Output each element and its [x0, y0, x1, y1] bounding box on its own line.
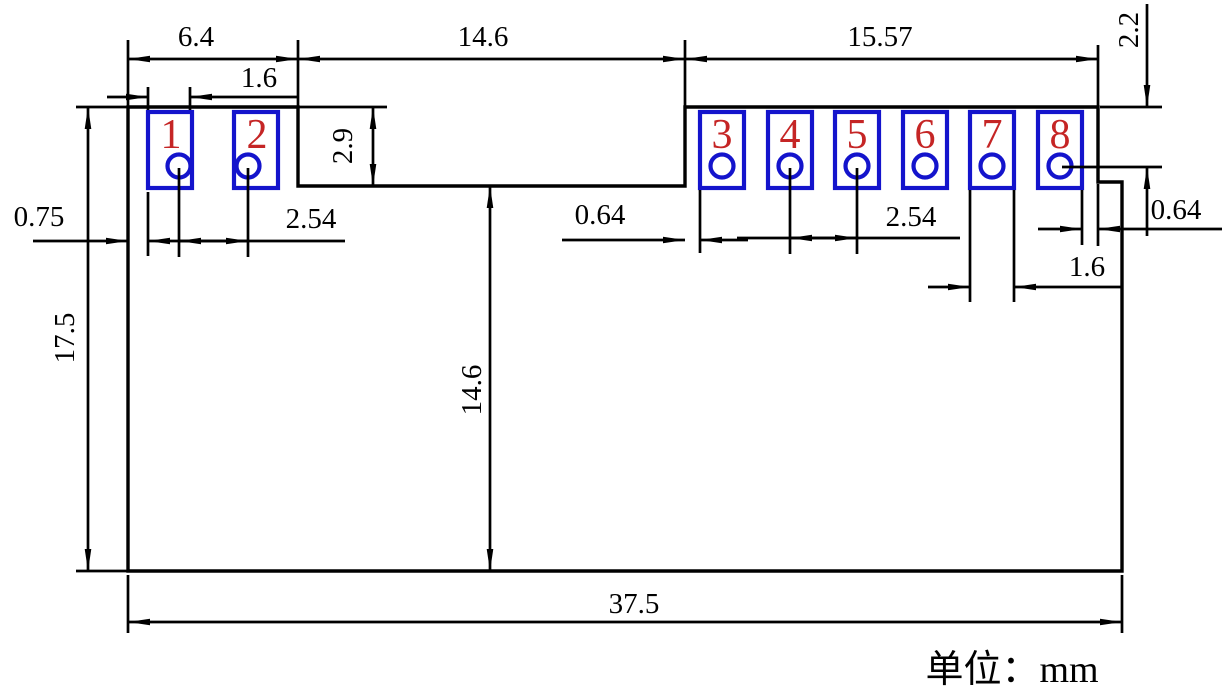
dim-step-height: 2.9 [327, 128, 359, 164]
dimension-texts-group: 6.4 14.6 15.57 1.6 0.75 2.54 0.64 2.54 0… [14, 12, 1202, 620]
unit-note: 单位：mm [925, 649, 1098, 691]
dim-pad1-width: 1.6 [241, 62, 277, 94]
pad-number-8: 8 [1050, 112, 1071, 158]
dim-right-hole-pitch: 2.54 [886, 201, 937, 233]
dim-right-block-inset: 0.64 [575, 199, 626, 231]
dim-pad7-width: 1.6 [1069, 251, 1105, 283]
pad-number-2: 2 [247, 112, 268, 158]
dim-left-hole-pitch: 2.54 [286, 203, 337, 235]
dimension-lines-group [33, 4, 1222, 622]
pad-number-7: 7 [982, 112, 1003, 158]
dim-total-width: 37.5 [609, 588, 660, 620]
dim-top-right-width: 15.57 [847, 21, 912, 53]
dimension-drawing: 1 2 3 4 5 6 7 8 [0, 0, 1225, 692]
dim-top-middle-width: 14.6 [458, 21, 509, 53]
dim-total-height: 17.5 [49, 313, 81, 364]
pad-number-4: 4 [780, 112, 801, 158]
dim-notch-depth: 14.6 [456, 365, 488, 416]
dim-pad8-edge-inset: 0.64 [1151, 194, 1202, 226]
dim-left-edge-to-pad: 0.75 [14, 201, 65, 233]
pad-number-1: 1 [161, 112, 182, 158]
pad-number-5: 5 [847, 112, 868, 158]
pads-group [148, 112, 1082, 188]
pad-number-3: 3 [712, 112, 733, 158]
pad-number-6: 6 [915, 112, 936, 158]
dim-top-to-hole: 2.2 [1113, 12, 1145, 48]
dim-top-left-width: 6.4 [178, 21, 215, 53]
